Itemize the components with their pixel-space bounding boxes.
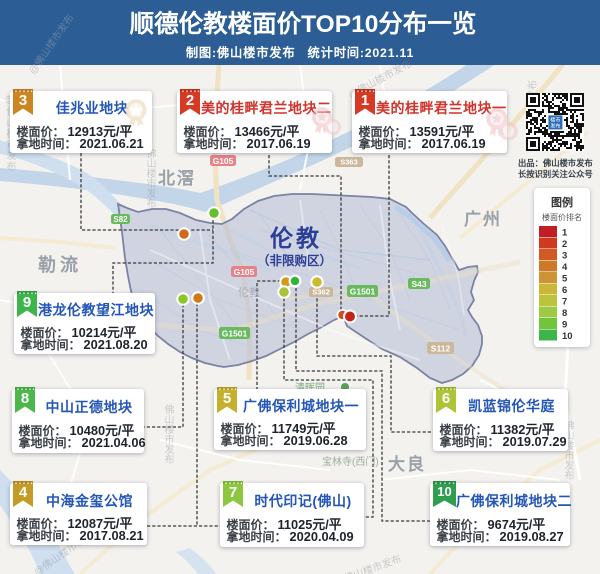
svg-text:9: 9 (562, 320, 567, 331)
svg-text:G105: G105 (213, 156, 234, 166)
svg-text:勒流: 勒流 (38, 254, 82, 275)
svg-text:（非限购区）: （非限购区） (257, 253, 332, 268)
svg-text:伦教: 伦教 (270, 225, 322, 251)
svg-text:S82: S82 (113, 215, 128, 224)
svg-text:2: 2 (562, 239, 567, 250)
svg-text:广州: 广州 (464, 209, 502, 229)
svg-text:G1501: G1501 (350, 287, 376, 297)
svg-text:S363: S363 (340, 158, 358, 167)
svg-text:6: 6 (562, 285, 567, 296)
svg-text:楼市: 楼市 (550, 115, 560, 123)
svg-text:S112: S112 (431, 344, 451, 354)
svg-text:S43: S43 (411, 279, 426, 289)
svg-text:北滘: 北滘 (158, 169, 196, 188)
svg-text:5: 5 (562, 274, 568, 285)
svg-text:发布: 发布 (550, 121, 560, 129)
svg-text:大良: 大良 (388, 454, 426, 474)
svg-text:伦教: 伦教 (238, 285, 260, 299)
svg-text:3: 3 (562, 251, 567, 262)
svg-text:宝林寺(西门): 宝林寺(西门) (322, 455, 379, 468)
svg-text:G1501: G1501 (222, 329, 248, 339)
svg-text:8: 8 (562, 308, 567, 319)
svg-text:4: 4 (562, 262, 568, 273)
svg-text:7: 7 (562, 297, 567, 308)
svg-text:G105: G105 (234, 267, 255, 277)
svg-text:S362: S362 (312, 288, 330, 297)
svg-text:1: 1 (562, 228, 568, 239)
svg-text:10: 10 (562, 331, 573, 342)
